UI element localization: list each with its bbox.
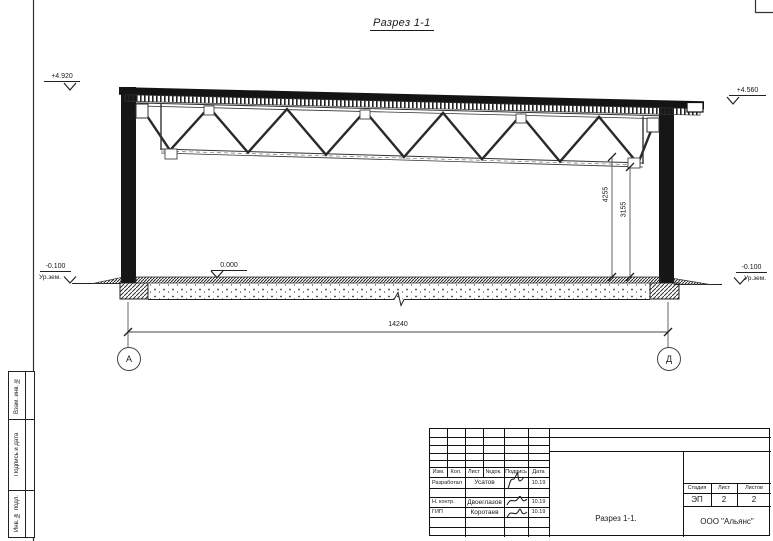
row-name: Двоеглазов [465,497,504,507]
titleblock-line [430,437,549,438]
titleblock-line [430,527,549,528]
row-date: 10.19 [528,497,549,507]
elevation-floor: 0.000 [211,261,247,271]
sidebar-label-podpis: Подпись и дата [9,419,25,490]
sidebar-label-inv: Инв. № подл. [9,490,25,537]
sheets-value: 2 [737,493,771,506]
elevation-right-ground: -0.100 [736,263,767,273]
row-date: 10.19 [528,507,549,517]
left-column [121,87,136,283]
titleblock-line [430,453,549,454]
right-column [659,107,674,283]
dimension-span: 14240 [368,321,428,328]
elevation-left-top: +4.920 [44,72,80,82]
sidebar-label-vzam: Взам. инв. № [9,372,25,419]
row-date: 10.19 [528,477,549,488]
signature-stroke [504,467,528,493]
ground-level-label-left: Ур.зем. [39,273,61,282]
titleblock-line [430,460,549,461]
sheets-label: Листов [737,483,771,493]
titleblock-line [549,437,771,438]
doc-title: Разрез 1-1. [549,509,683,527]
ground-level-label-right: Ур.зем. [744,274,766,283]
header-data: Дата [528,467,549,477]
sheet-value: 2 [711,493,737,506]
frame-sidebar: Взам. инв. № Подпись и дата Инв. № подл. [8,371,35,538]
row-name: Коротаев [465,507,504,517]
row-name: Усатов [465,477,504,488]
titleblock-line [549,451,771,452]
axis-bubble-a: А [117,347,141,371]
roof-truss [136,103,659,168]
stage-value: ЭП [683,493,711,506]
row-role: ГИП [430,507,467,517]
titleblock-line [430,445,549,446]
floor-slab [136,277,660,306]
titleblock-line [430,517,549,518]
header-izm: Изм. [430,467,447,477]
axis-bubble-d: Д [657,347,681,371]
stage-label: Стадия [683,483,711,493]
row-role: Н. контр. [430,497,467,507]
header-list: Лист [465,467,483,477]
elevation-right-top: +4.560 [729,86,766,96]
left-foundation [120,283,148,299]
company-name: ООО "Альянс" [683,506,771,537]
header-kol: Кол. [447,467,465,477]
right-foundation [650,283,679,299]
sheet-label: Лист [711,483,737,493]
row-role: Разработал [430,477,467,488]
elevation-left-ground: -0.100 [40,262,71,272]
signature-stroke [504,505,530,521]
dimension-3155: 3155 [621,190,628,230]
title-block: Изм. Кол. Лист №док. Подпись Дата Разраб… [429,428,770,536]
sidebar-divider [25,372,26,537]
header-ndok: №док. [483,467,504,477]
dimension-4255: 4255 [603,175,610,215]
titleblock-line [430,488,549,489]
drawing-sheet: Разрез 1-1 +4.920 +4.560 0.000 -0.100 Ур… [0,0,773,541]
drawing-title: Разрез 1-1 [370,17,434,31]
